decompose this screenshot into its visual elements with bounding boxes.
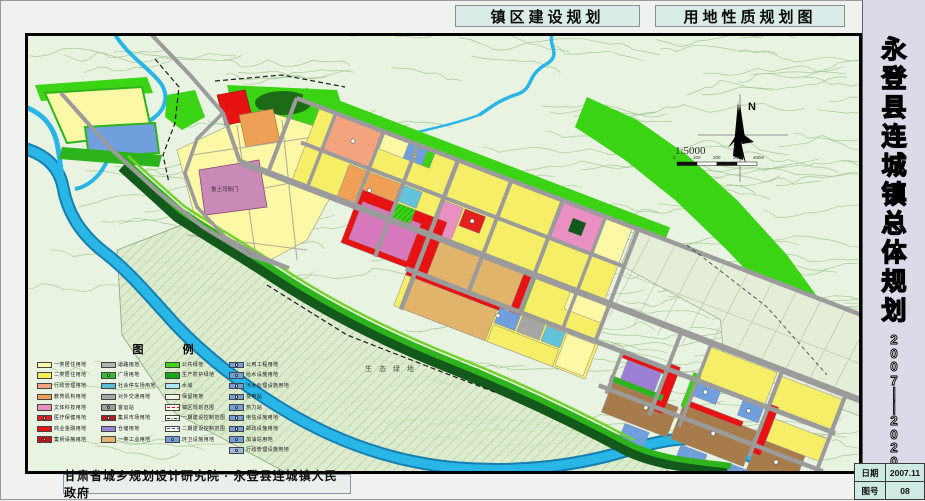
legend-swatch	[229, 415, 244, 422]
legend-item: 二类居住用地	[37, 372, 97, 380]
legend-item: 教育机构用地	[37, 393, 97, 401]
header-map-title-label: 用地性质规划图	[683, 6, 816, 27]
header-plan-type-label: 镇区建设规划	[490, 6, 604, 27]
legend-label: 对外交通用地	[118, 394, 150, 400]
period-char: 2	[890, 414, 897, 428]
legend-label: 行政管理用地	[54, 383, 86, 389]
legend-item: 公共绿地	[165, 361, 225, 369]
period-char: 2	[890, 333, 897, 347]
header-plan-type: 镇区建设规划	[455, 5, 640, 27]
period-char: 7	[890, 374, 897, 388]
legend-label: 电信设施用地	[246, 415, 278, 421]
svg-text:100: 100	[693, 155, 701, 160]
legend-swatch	[165, 394, 180, 401]
svg-text:400m: 400m	[753, 155, 765, 160]
legend-label: 公共绿地	[182, 362, 204, 368]
legend-label: 文体科技用地	[54, 405, 86, 411]
legend-item: 行政管理用地	[37, 382, 97, 390]
svg-text:200: 200	[713, 155, 721, 160]
title-char: 体	[881, 239, 906, 268]
svg-text:300: 300	[733, 155, 741, 160]
legend-title: 图 例	[37, 341, 289, 357]
legend-swatch	[165, 362, 180, 369]
legend-label: 加油站用地	[246, 437, 273, 443]
legend-item: 对外交通用地	[101, 393, 161, 401]
legend-label: 广场用地	[118, 372, 140, 378]
legend-swatch	[165, 383, 180, 390]
legend-swatch	[37, 426, 52, 433]
legend-label: 热力站	[246, 405, 262, 411]
legend-swatch: P	[101, 404, 116, 411]
legend-item: 一期建设控制范围	[165, 414, 225, 422]
legend-label: 教育机构用地	[54, 394, 86, 400]
title-char: 规	[881, 268, 906, 297]
legend-item: P客运站	[101, 404, 161, 412]
legend-label: 保留用地	[182, 394, 204, 400]
title-char: 连	[881, 123, 906, 152]
legend-label: 公用工程用地	[246, 362, 278, 368]
legend-column-4: 公用工程用地给水设施用地污水处理设施用地变电站热力站电信设施用地邮政设施用地加油…	[229, 361, 289, 454]
legend-item: 加油站用地	[229, 436, 289, 444]
legend-column-1: 一类居住用地二类居住用地行政管理用地教育机构用地文体科技用地+医疗保健用地商业金…	[37, 361, 97, 454]
legend-item: 给水设施用地	[229, 372, 289, 380]
title-char: 永	[881, 36, 906, 65]
title-char: 县	[881, 94, 906, 123]
period-char: 2	[890, 441, 897, 455]
legend-swatch	[229, 372, 244, 379]
date-value: 2007.11	[886, 464, 925, 482]
legend-label: 商业金融用地	[54, 426, 86, 432]
legend-swatch	[165, 372, 180, 379]
credit-bar: 甘肃省城乡规划设计研究院 · 永登县连城镇人民政府	[63, 474, 351, 494]
legend-label: 邮政设施用地	[246, 426, 278, 432]
title-char: 城	[881, 152, 906, 181]
title-char: 总	[881, 210, 906, 239]
legend-column-2: 道路用地广场用地社会停车场用地对外交通用地P客运站集贸市场用地仓储用地一类工业用…	[101, 361, 161, 454]
label-historic-site: 鲁土司衙门	[211, 185, 239, 193]
legend-item: 一类居住用地	[37, 361, 97, 369]
legend-label: 污水处理设施用地	[246, 383, 289, 389]
legend-swatch	[37, 404, 52, 411]
legend-item: 社会停车场用地	[101, 382, 161, 390]
legend-label: 行政管理设施用地	[246, 447, 289, 453]
legend-swatch	[101, 436, 116, 443]
legend-label: 社会停车场用地	[118, 383, 156, 389]
legend-swatch	[229, 426, 244, 433]
legend-swatch	[101, 394, 116, 401]
legend-swatch	[165, 436, 180, 443]
legend-item: 生产防护绿地	[165, 372, 225, 380]
legend-label: 仓储用地	[118, 426, 140, 432]
title-char: 划	[881, 297, 906, 326]
legend-label: 给水设施用地	[246, 372, 278, 378]
header-map-title: 用地性质规划图	[655, 5, 845, 27]
legend-item: 集贸市场用地	[101, 414, 161, 422]
legend-label: 客运站	[118, 405, 134, 411]
legend-item: 热力站	[229, 404, 289, 412]
legend-swatch	[229, 362, 244, 369]
map-legend: 图 例 一类居住用地二类居住用地行政管理用地教育机构用地文体科技用地+医疗保健用…	[37, 341, 289, 454]
legend-swatch: +	[37, 415, 52, 422]
legend-swatch	[101, 426, 116, 433]
legend-item: 电信设施用地	[229, 414, 289, 422]
legend-item: 集贸设施用地	[37, 436, 97, 444]
label-eco-green: 生 态 绿 地	[365, 364, 416, 373]
legend-label: 一类居住用地	[54, 362, 86, 368]
legend-item: 道路用地	[101, 361, 161, 369]
legend-swatch	[229, 394, 244, 401]
legend-label: 水域	[182, 383, 193, 389]
legend-swatch	[37, 436, 52, 443]
legend-label: 一期建设控制范围	[182, 415, 225, 421]
legend-label: 医疗保健用地	[54, 415, 86, 421]
legend-item: 一类工业用地	[101, 436, 161, 444]
legend-swatch	[37, 372, 52, 379]
legend-item: 镇区规划范围	[165, 404, 225, 412]
legend-item: 污水处理设施用地	[229, 382, 289, 390]
legend-label: 集贸设施用地	[54, 437, 86, 443]
credit-text: 甘肃省城乡规划设计研究院 · 永登县连城镇人民政府	[64, 467, 350, 501]
legend-label: 镇区规划范围	[182, 405, 214, 411]
period-char: —	[887, 401, 901, 414]
legend-item: 行政管理设施用地	[229, 447, 289, 455]
legend-swatch	[229, 404, 244, 411]
legend-swatch	[37, 383, 52, 390]
legend-swatch	[229, 436, 244, 443]
legend-label: 道路用地	[118, 362, 140, 368]
legend-item: 变电站	[229, 393, 289, 401]
compass-north-label: N	[748, 101, 756, 113]
legend-swatch	[165, 426, 180, 433]
legend-item: 公用工程用地	[229, 361, 289, 369]
legend-item: 文体科技用地	[37, 404, 97, 412]
legend-swatch	[165, 415, 180, 422]
date-label: 日期	[855, 464, 886, 482]
legend-swatch	[101, 372, 116, 379]
legend-item: +医疗保健用地	[37, 414, 97, 422]
sheet-number-label: 图号	[855, 482, 886, 500]
title-char: 登	[881, 65, 906, 94]
legend-swatch	[229, 383, 244, 390]
legend-item: 保留用地	[165, 393, 225, 401]
plan-period-vertical: 2007——2020	[863, 333, 925, 468]
legend-label: 变电站	[246, 394, 262, 400]
legend-item: 水域	[165, 382, 225, 390]
legend-swatch	[101, 362, 116, 369]
legend-label: 二期建设控制范围	[182, 426, 225, 432]
legend-swatch	[37, 394, 52, 401]
legend-label: 环卫设施用地	[182, 437, 214, 443]
legend-item: 商业金融用地	[37, 425, 97, 433]
legend-label: 生产防护绿地	[182, 372, 214, 378]
drawing-info-table: 日期 2007.11 图号 08	[854, 463, 925, 500]
period-char: —	[887, 387, 901, 400]
legend-swatch	[229, 447, 244, 454]
legend-item: 二期建设控制范围	[165, 425, 225, 433]
period-char: 0	[890, 347, 897, 361]
legend-swatch	[37, 362, 52, 369]
legend-label: 二类居住用地	[54, 372, 86, 378]
legend-item: 邮政设施用地	[229, 425, 289, 433]
legend-item: 环卫设施用地	[165, 436, 225, 444]
legend-item: 仓储用地	[101, 425, 161, 433]
sheet-number-value: 08	[886, 482, 925, 500]
legend-swatch	[165, 404, 180, 411]
scale-text: 1:5000	[675, 145, 706, 157]
period-char: 0	[890, 360, 897, 374]
legend-item: 广场用地	[101, 372, 161, 380]
title-panel: 永登县连城镇总体规划 2007——2020 日期 2007.11 图号 08	[862, 0, 925, 500]
legend-swatch	[101, 383, 116, 390]
legend-label: 一类工业用地	[118, 437, 150, 443]
legend-swatch	[101, 415, 116, 422]
title-char: 镇	[881, 181, 906, 210]
sheet-title-vertical: 永登县连城镇总体规划	[863, 36, 925, 326]
legend-label: 集贸市场用地	[118, 415, 150, 421]
period-char: 0	[890, 428, 897, 442]
map-area: 鲁土司衙门 生 态 绿 地 N 1:5000 0100200300400m 图 …	[25, 33, 862, 474]
legend-column-3: 公共绿地生产防护绿地水域保留用地镇区规划范围一期建设控制范围二期建设控制范围环卫…	[165, 361, 225, 454]
